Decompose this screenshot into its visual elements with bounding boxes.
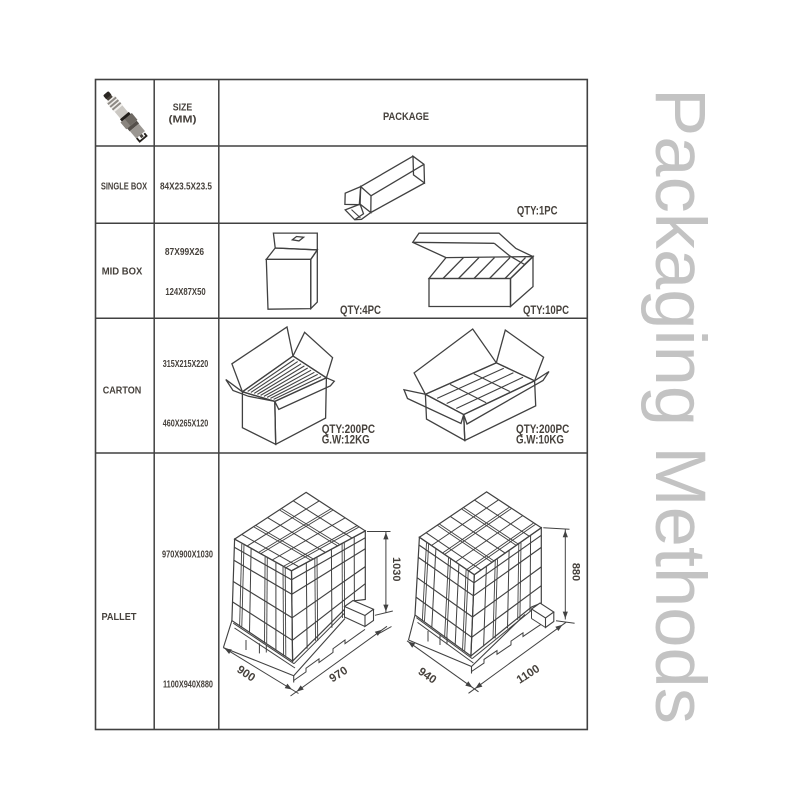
svg-text:124X87X50: 124X87X50 xyxy=(165,287,206,298)
svg-text:QTY:4PC: QTY:4PC xyxy=(340,303,381,317)
svg-text:Packaging Methods: Packaging Methods xyxy=(640,88,720,724)
svg-text:880: 880 xyxy=(570,563,582,581)
svg-text:87X99X26: 87X99X26 xyxy=(165,247,205,258)
svg-text:QTY:10PC: QTY:10PC xyxy=(523,303,569,317)
svg-text:1030: 1030 xyxy=(390,557,402,581)
svg-text:PACKAGE: PACKAGE xyxy=(383,111,429,123)
svg-text:84X23.5X23.5: 84X23.5X23.5 xyxy=(160,182,212,193)
svg-text:SIZE: SIZE xyxy=(173,102,193,114)
svg-text:315X215X220: 315X215X220 xyxy=(163,359,209,370)
svg-text:CARTON: CARTON xyxy=(103,386,142,397)
svg-text:1100X940X880: 1100X940X880 xyxy=(163,679,213,690)
svg-text:970X900X1030: 970X900X1030 xyxy=(162,550,213,561)
svg-text:QTY:1PC: QTY:1PC xyxy=(517,204,558,218)
svg-text:MID BOX: MID BOX xyxy=(102,267,143,278)
svg-text:(MM): (MM) xyxy=(169,113,197,125)
svg-text:SINGLE BOX: SINGLE BOX xyxy=(101,182,148,193)
svg-text:460X265X120: 460X265X120 xyxy=(163,418,209,429)
svg-text:G.W:10KG: G.W:10KG xyxy=(516,433,564,447)
svg-text:PALLET: PALLET xyxy=(102,612,137,623)
svg-text:G.W:12KG: G.W:12KG xyxy=(322,433,370,447)
